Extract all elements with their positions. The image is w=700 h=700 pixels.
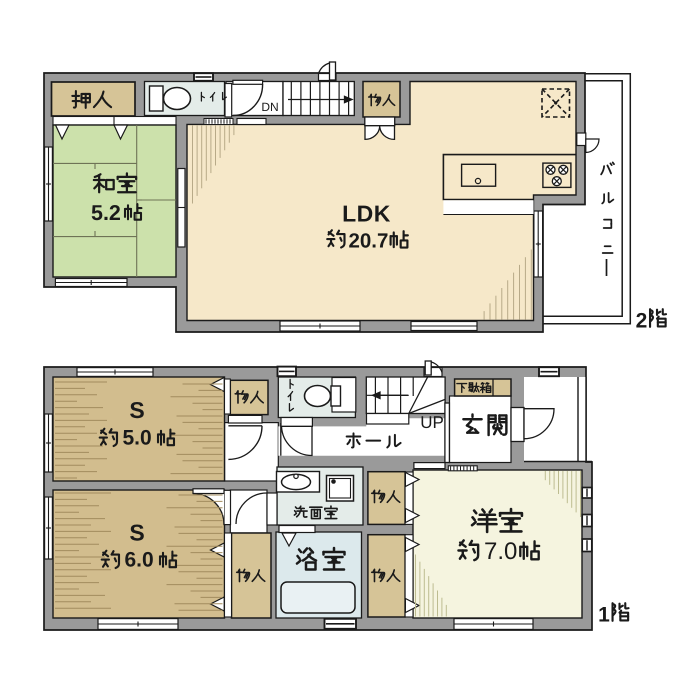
svg-text:6.0: 6.0: [125, 549, 154, 572]
svg-text:5.2: 5.2: [91, 201, 121, 225]
svg-text:S: S: [129, 397, 144, 423]
svg-text:UP: UP: [420, 413, 444, 432]
svg-text:S: S: [129, 520, 144, 546]
svg-text:1: 1: [598, 604, 610, 627]
svg-text:2: 2: [636, 310, 648, 333]
svg-text:7.0: 7.0: [484, 538, 517, 565]
svg-text:5.0: 5.0: [123, 427, 152, 450]
svg-text:20.7: 20.7: [349, 230, 389, 253]
svg-text:DN: DN: [261, 100, 278, 114]
svg-text:LDK: LDK: [342, 201, 391, 227]
